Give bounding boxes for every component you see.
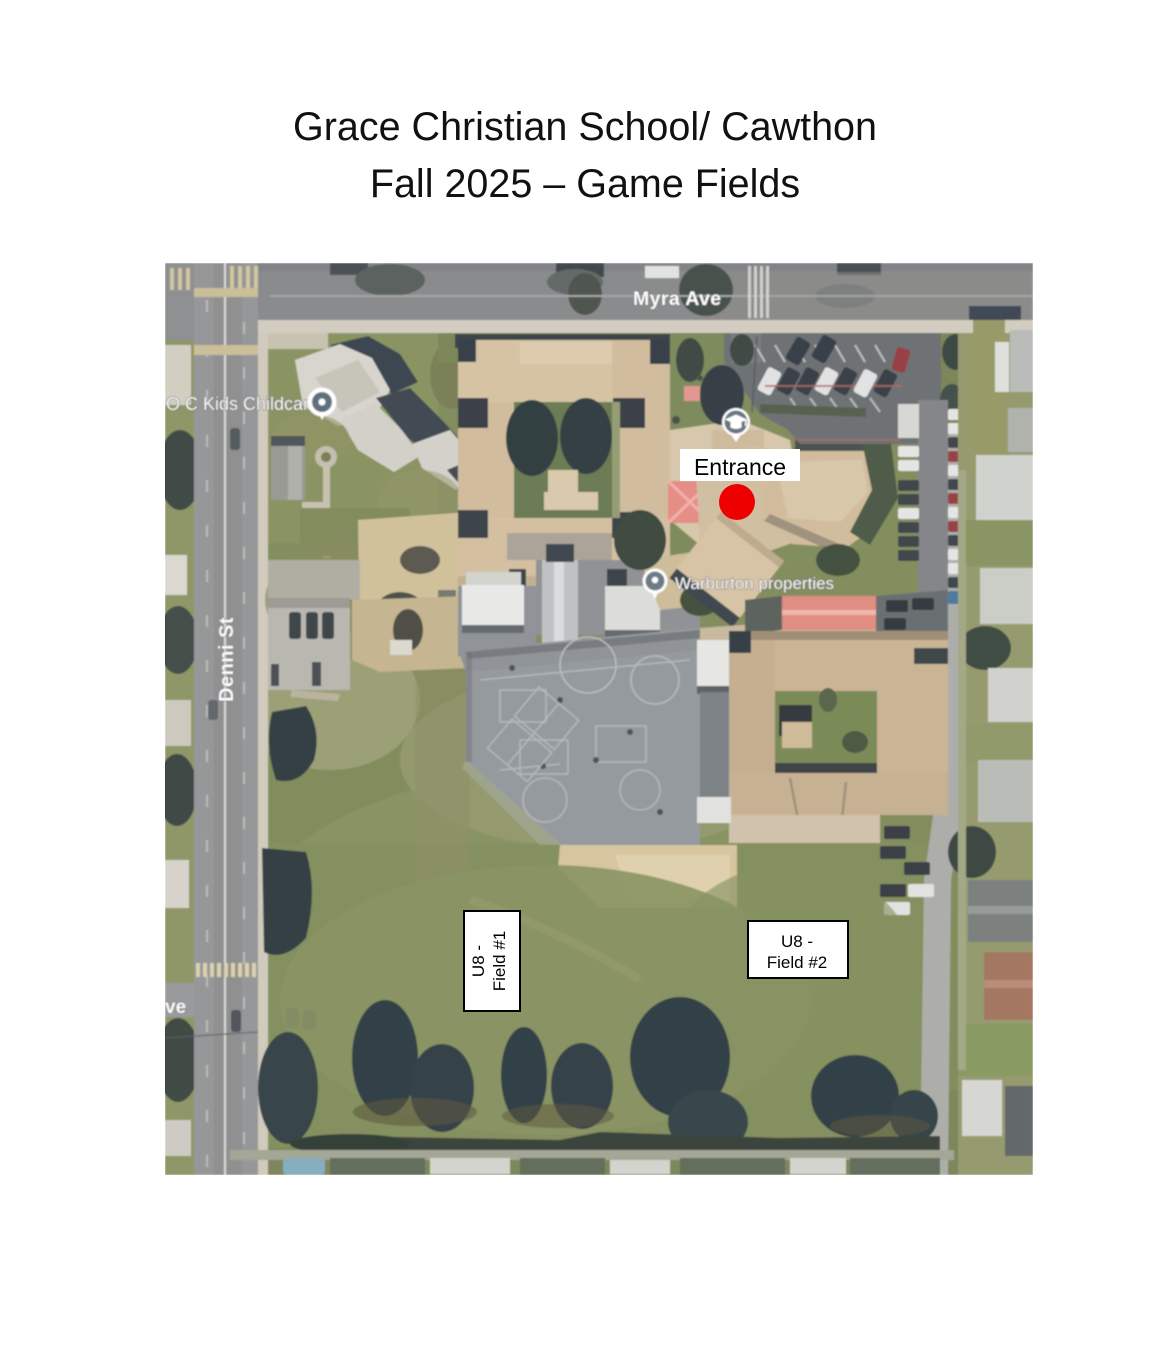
svg-text:Denni St: Denni St [216,617,238,702]
svg-text:O C Kids Childcare: O C Kids Childcare [166,394,319,414]
svg-text:Entrance: Entrance [694,454,786,480]
svg-text:U8 -: U8 - [469,945,488,977]
svg-text:Field #2: Field #2 [767,953,827,972]
svg-text:Field #1: Field #1 [490,931,509,991]
svg-text:U8 -: U8 - [781,932,813,951]
svg-text:ve: ve [165,997,186,1018]
svg-text:Warburton properties: Warburton properties [675,574,834,593]
svg-text:Myra Ave: Myra Ave [633,288,721,310]
